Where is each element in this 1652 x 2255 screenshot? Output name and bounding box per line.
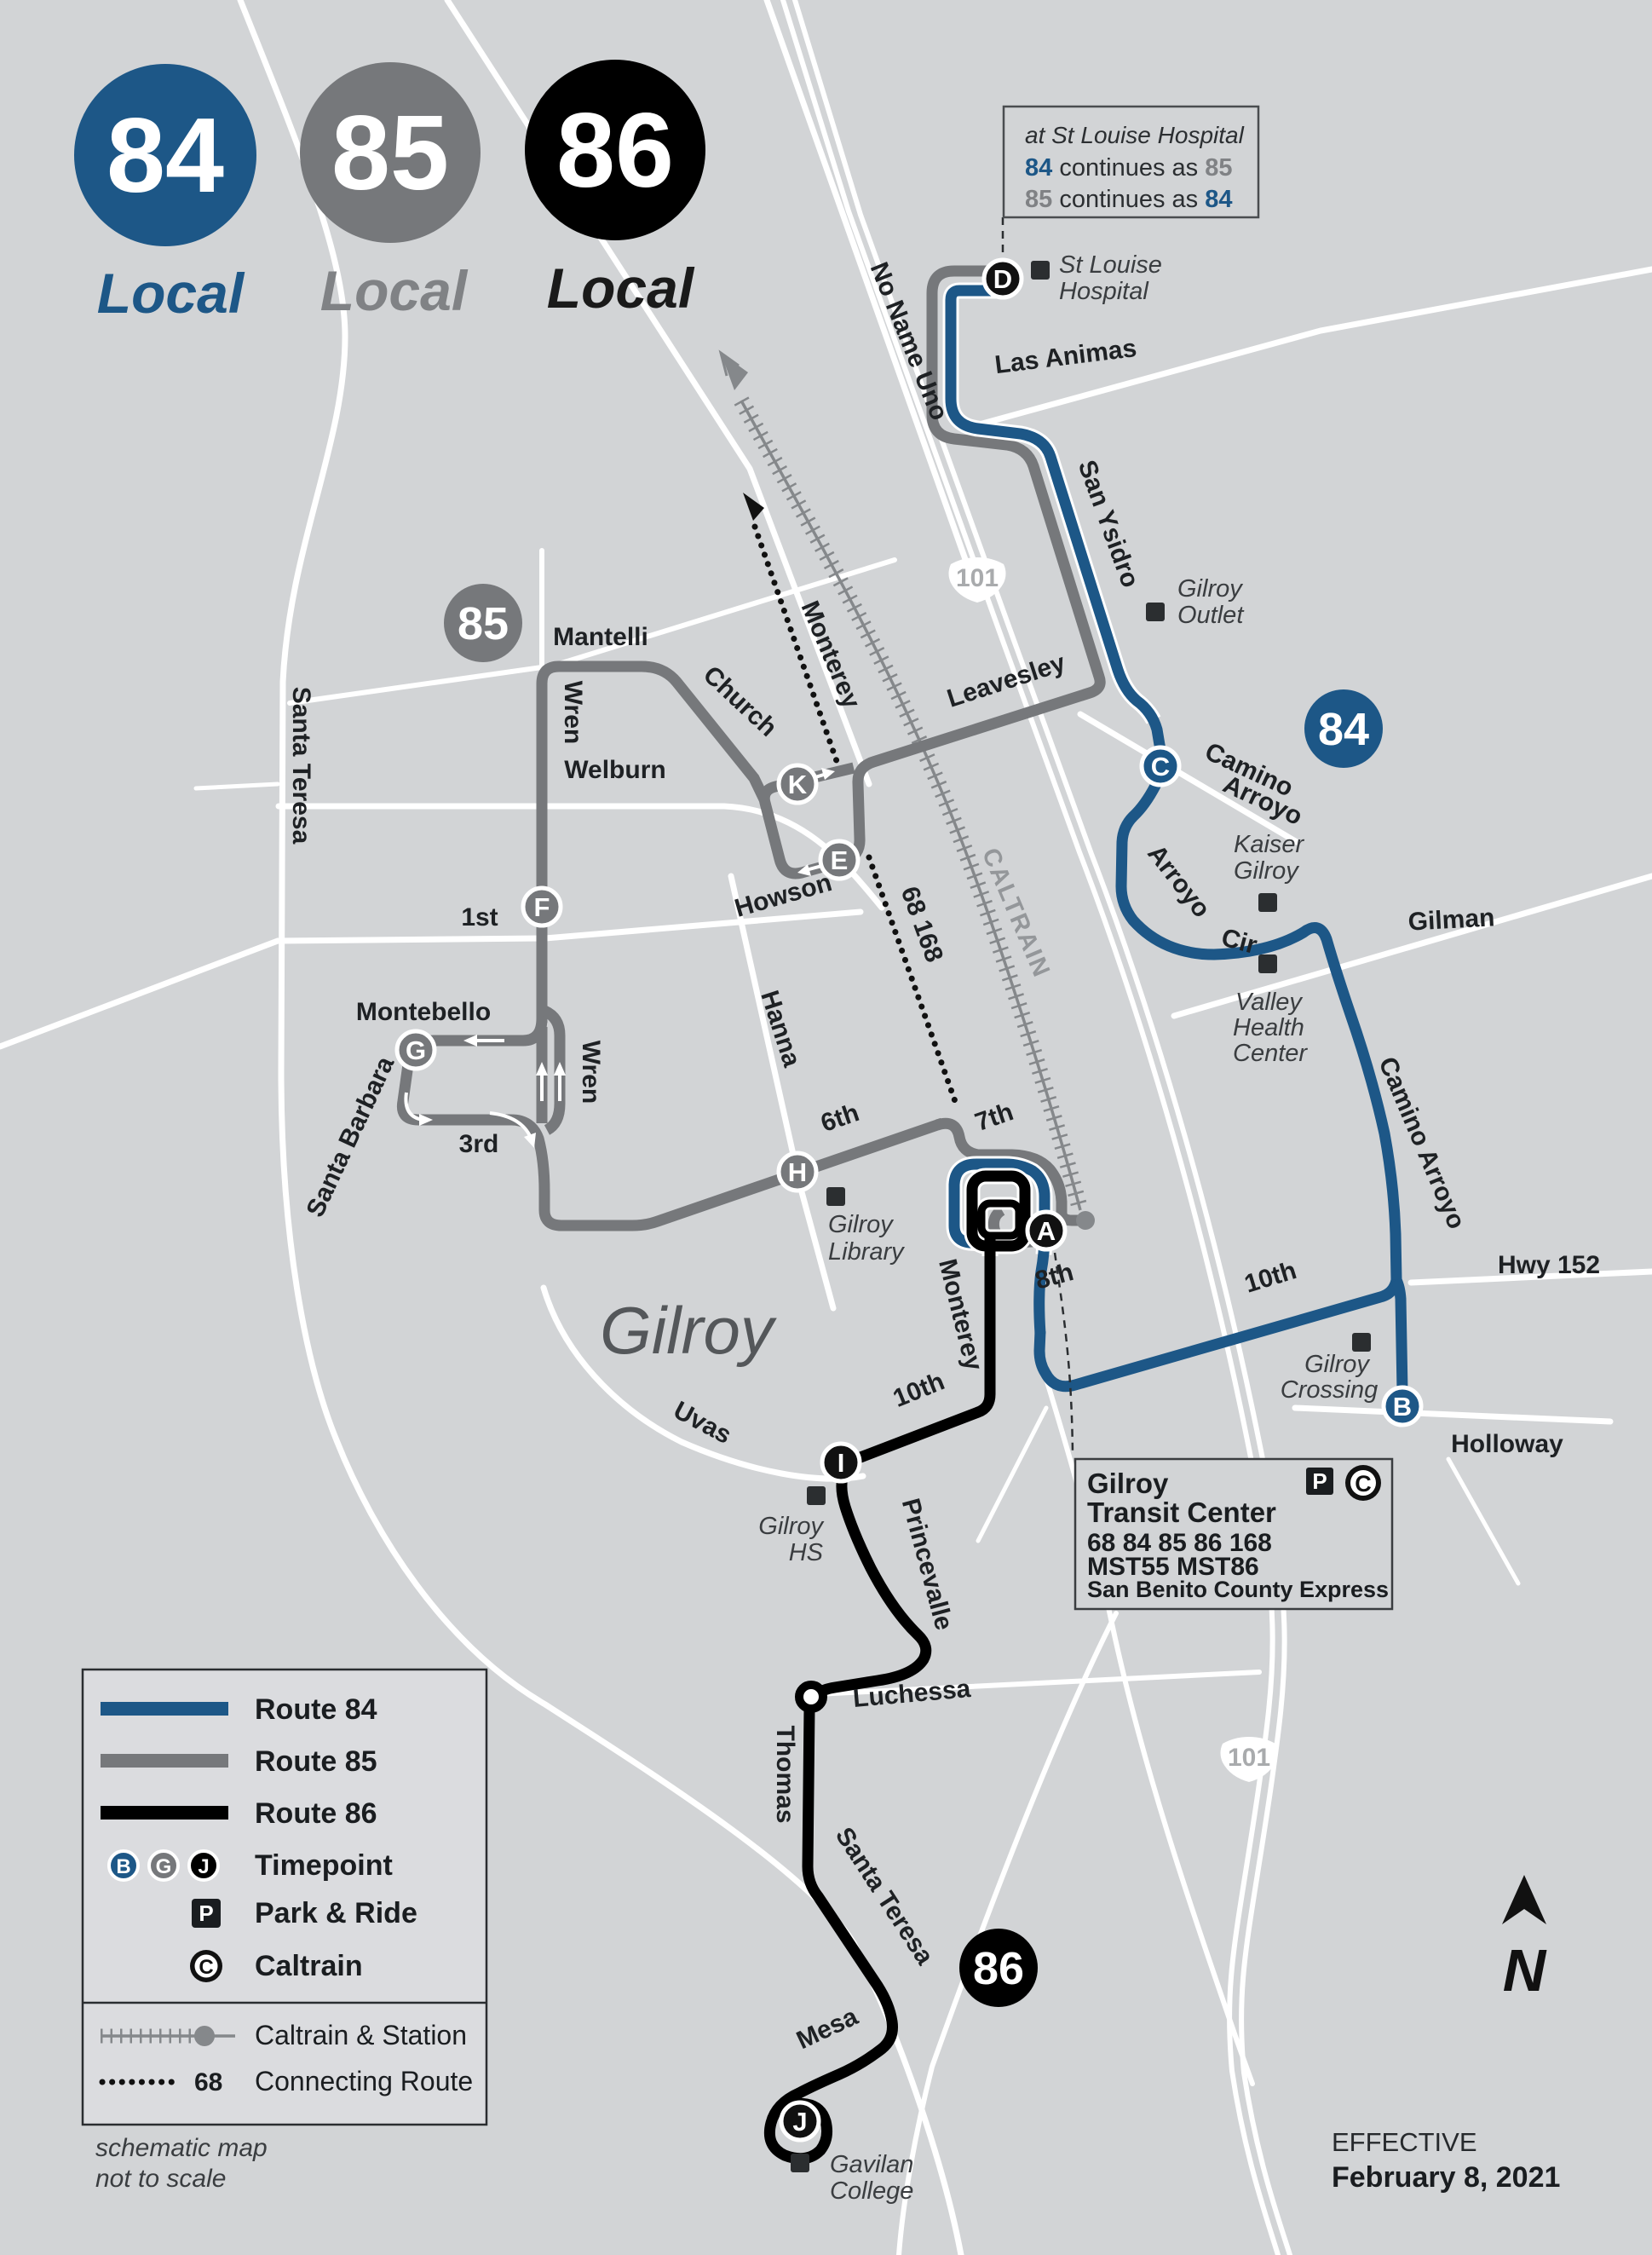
svg-text:G: G [406,1035,426,1065]
svg-text:H: H [788,1157,807,1187]
svg-text:Caltrain: Caltrain [255,1950,363,1982]
svg-text:February 8, 2021: February 8, 2021 [1332,2161,1560,2194]
svg-text:84 continues as 85: 84 continues as 85 [1025,154,1232,182]
svg-text:Outlet: Outlet [1177,602,1245,629]
svg-text:C: C [1355,1471,1372,1497]
svg-text:85: 85 [458,598,509,649]
svg-text:86: 86 [973,1943,1024,1994]
svg-text:Gilroy: Gilroy [758,1513,824,1540]
svg-text:Local: Local [97,262,245,325]
svg-text:Welburn: Welburn [564,756,665,784]
svg-text:J: J [198,1855,209,1878]
svg-text:Route 84: Route 84 [255,1693,377,1726]
svg-text:Wren: Wren [577,1041,605,1104]
svg-text:J: J [792,2107,807,2137]
svg-text:Montebello: Montebello [356,998,491,1026]
svg-text:Transit Center: Transit Center [1087,1497,1276,1528]
svg-text:Santa Teresa: Santa Teresa [287,687,315,845]
svg-text:at St Louise Hospital: at St Louise Hospital [1025,122,1245,148]
svg-text:G: G [156,1855,172,1878]
svg-text:E: E [831,845,849,875]
svg-text:D: D [993,264,1012,294]
svg-text:HS: HS [789,1539,824,1566]
svg-text:101: 101 [956,564,999,592]
svg-text:68: 68 [194,2068,222,2096]
svg-text:Library: Library [828,1238,905,1266]
svg-text:Hwy 152: Hwy 152 [1498,1251,1600,1279]
svg-text:85: 85 [331,95,449,212]
svg-text:Wren: Wren [559,681,587,744]
svg-text:Route 85: Route 85 [255,1745,377,1778]
svg-text:not to scale: not to scale [95,2165,226,2193]
svg-text:St Louise: St Louise [1059,251,1162,279]
svg-text:Gilroy: Gilroy [600,1293,777,1368]
svg-text:Gilman: Gilman [1407,903,1495,936]
svg-text:Timepoint: Timepoint [255,1849,393,1882]
svg-text:A: A [1037,1216,1056,1246]
svg-text:College: College [830,2177,913,2205]
svg-text:Gilroy: Gilroy [1304,1351,1370,1378]
svg-text:Gilroy: Gilroy [1177,575,1243,603]
svg-text:I: I [838,1448,845,1478]
svg-text:K: K [788,770,808,799]
svg-text:Gilroy: Gilroy [1087,1468,1169,1499]
svg-text:N: N [1503,1937,1547,2004]
svg-text:B: B [1393,1392,1412,1422]
svg-text:C: C [1151,752,1170,781]
svg-text:3rd: 3rd [459,1130,499,1158]
svg-text:Gilroy: Gilroy [828,1211,894,1238]
svg-text:Gilroy: Gilroy [1234,857,1299,885]
svg-text:85 continues as 84: 85 continues as 84 [1025,186,1232,213]
svg-text:Hospital: Hospital [1059,278,1149,305]
svg-text:Health: Health [1233,1014,1304,1041]
svg-text:Connecting Route: Connecting Route [255,2066,473,2096]
svg-text:101: 101 [1228,1744,1270,1772]
svg-text:San Benito County Express: San Benito County Express [1087,1577,1389,1602]
svg-text:Local: Local [547,257,695,320]
svg-text:schematic map: schematic map [95,2134,268,2162]
svg-text:Holloway: Holloway [1451,1430,1563,1458]
svg-text:84: 84 [1318,704,1369,755]
svg-text:Mantelli: Mantelli [553,623,648,651]
svg-text:P: P [1312,1468,1327,1494]
svg-text:Route 86: Route 86 [255,1797,377,1830]
svg-text:Valley: Valley [1235,989,1303,1016]
svg-text:EFFECTIVE: EFFECTIVE [1332,2127,1477,2157]
svg-text:Gavilan: Gavilan [830,2151,913,2178]
svg-text:Local: Local [320,259,469,322]
svg-text:Thomas: Thomas [771,1725,799,1823]
svg-text:1st: 1st [461,903,498,931]
svg-text:P: P [199,1900,213,1926]
svg-text:F: F [534,892,550,922]
svg-text:Caltrain & Station: Caltrain & Station [255,2020,467,2050]
svg-text:B: B [116,1855,130,1878]
svg-text:Crossing: Crossing [1281,1376,1378,1404]
svg-text:86: 86 [556,92,674,210]
svg-text:Park & Ride: Park & Ride [255,1897,417,1929]
svg-text:84: 84 [106,97,224,215]
svg-text:C: C [199,1956,213,1979]
svg-text:Center: Center [1233,1040,1308,1067]
svg-text:Kaiser: Kaiser [1234,831,1305,858]
